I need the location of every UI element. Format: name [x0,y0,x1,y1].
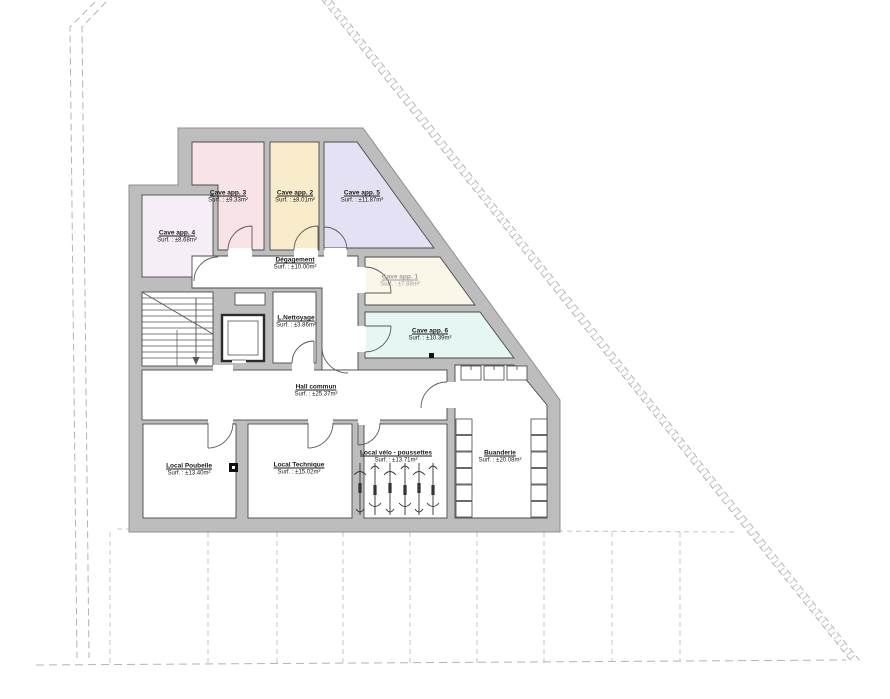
intercom-symbol-center [232,466,235,469]
door-opening [211,257,220,281]
washer-box [456,436,472,452]
room-local-poubelle [143,424,236,518]
room-local-velo [364,424,447,518]
door-opening [357,267,366,293]
washer-box [456,452,472,468]
door-opening [213,365,233,371]
door-opening [357,326,366,352]
door-opening [294,248,318,257]
floor-plan-svg [0,0,890,699]
door-opening [358,419,380,425]
boundary-left-line-1 [70,2,95,658]
elevator-door-gap [232,358,246,363]
door-opening [446,382,456,408]
washer-box [456,469,472,485]
boundary-bottom-line [36,660,846,665]
room-staircase [142,292,213,366]
door-opening [308,419,333,425]
outlet-symbol [429,353,434,358]
elevator-duct [235,293,265,305]
washer-box [456,419,472,435]
room-local-technique [248,424,352,518]
room-hall-commun [142,370,447,420]
washer-box [531,469,547,485]
floor-plan-page: Cave app. 3 Surf. : ±9.33m² Cave app. 2 … [0,0,890,699]
washer-box [531,502,547,518]
washer-box [531,419,547,435]
door-opening [292,362,314,371]
door-opening [324,248,347,257]
washer-box [531,485,547,501]
washer-box [531,452,547,468]
boundary-left-line-2 [82,2,106,658]
parking-dashed-grid [110,529,737,663]
washer-box [456,485,472,501]
door-opening [208,419,233,425]
washer-box [531,436,547,452]
room-cave-app-2 [270,142,319,250]
washer-box [456,502,472,518]
door-opening [228,248,252,257]
